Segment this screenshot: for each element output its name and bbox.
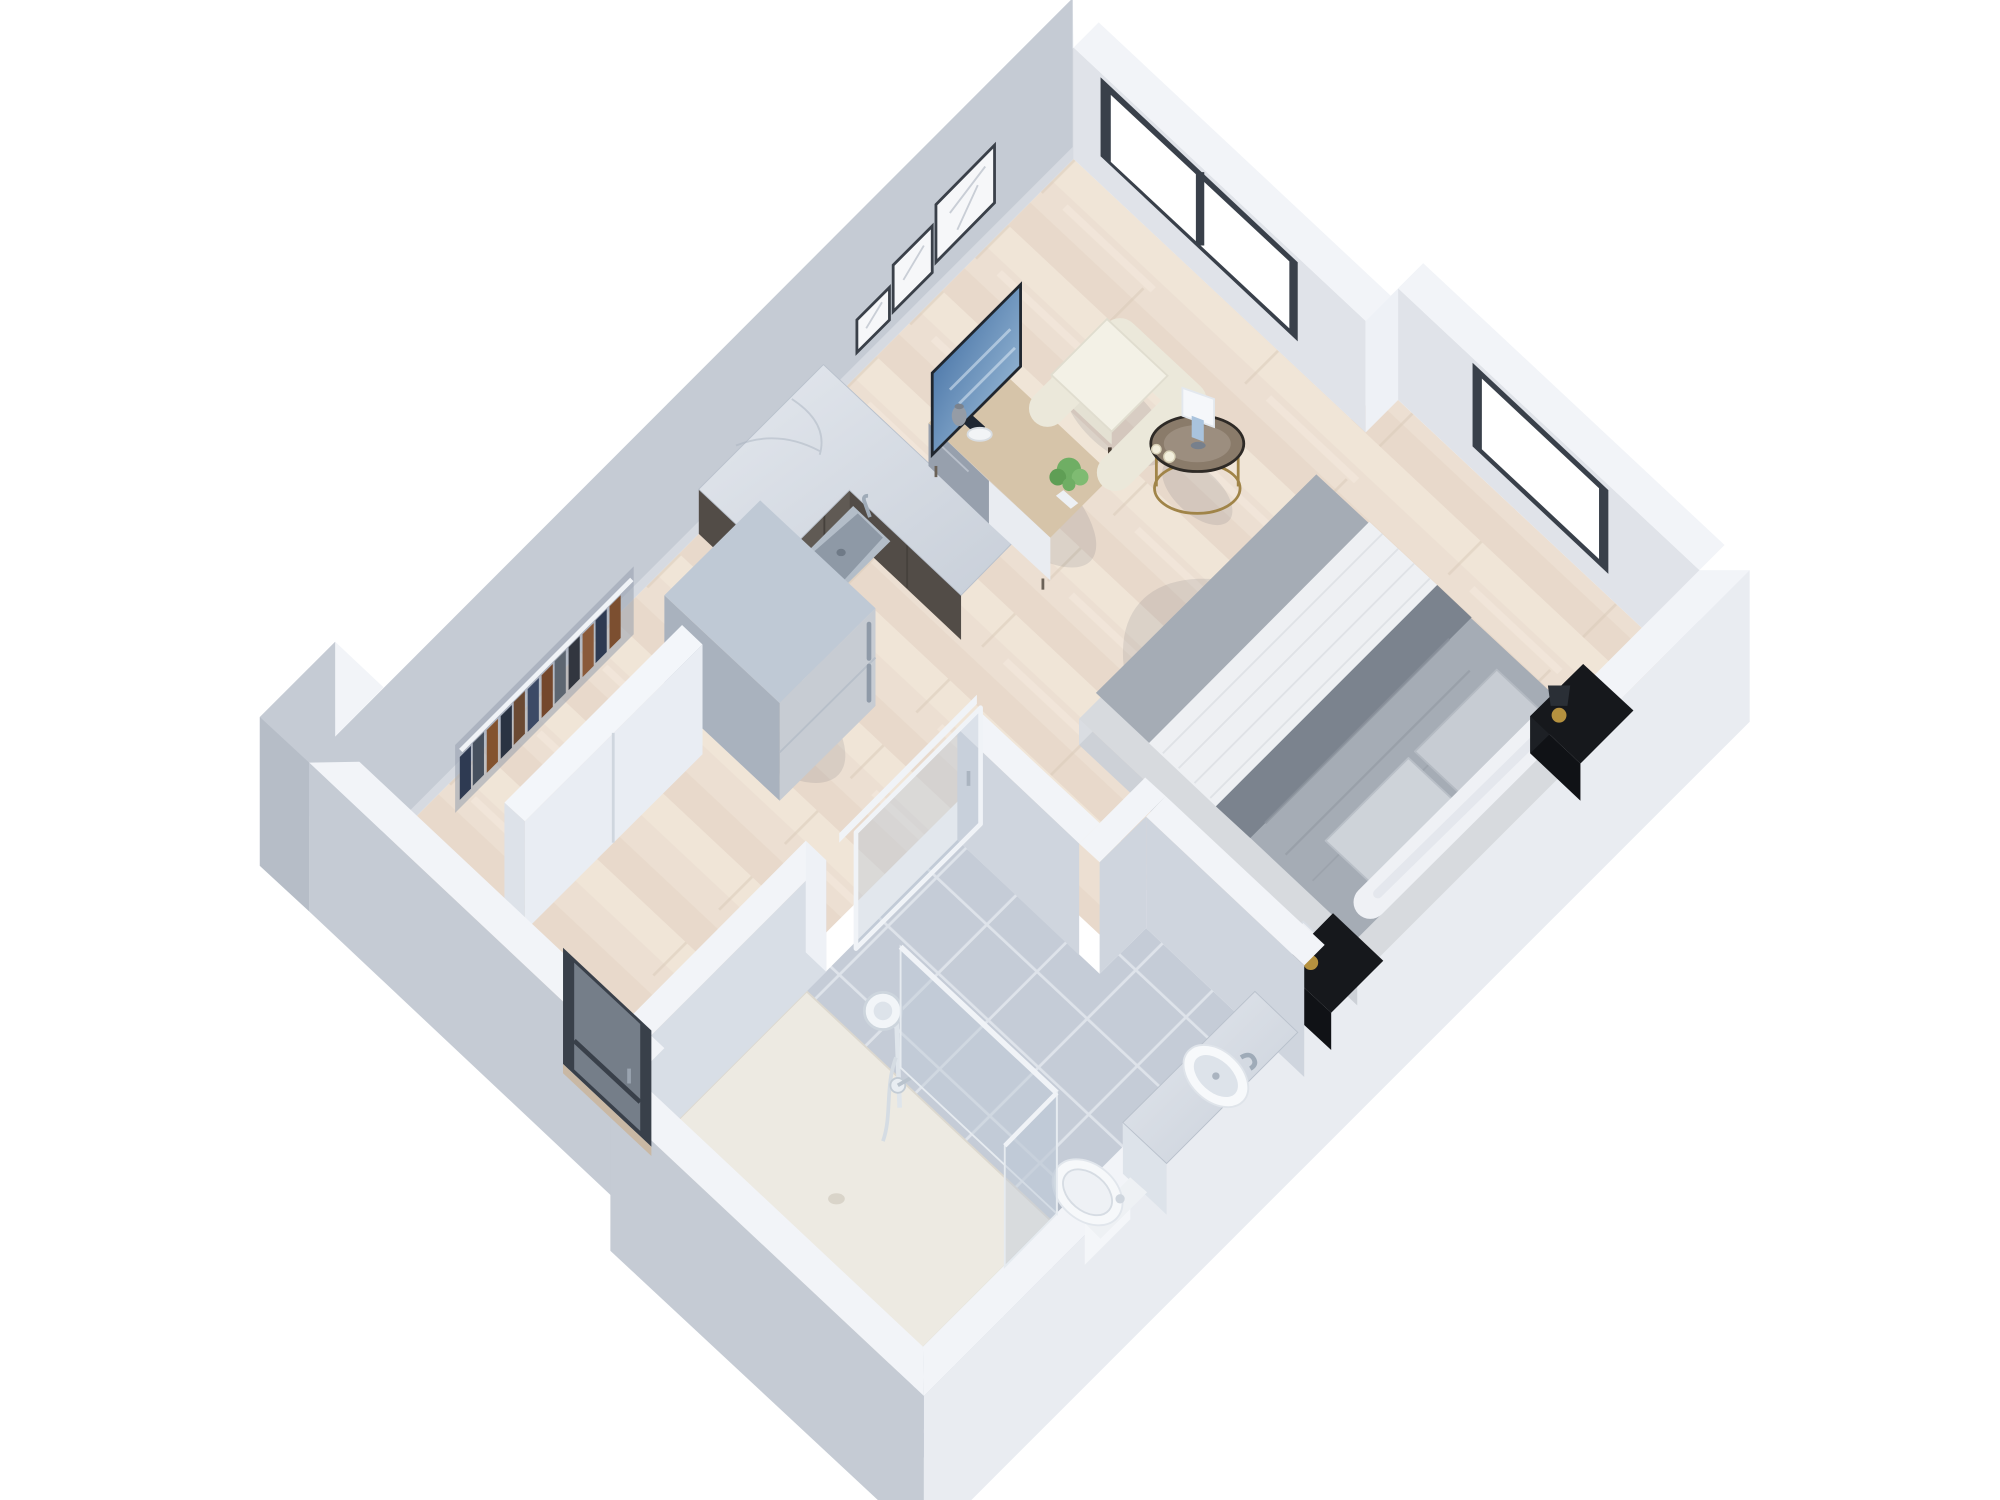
lamp-base [1191,442,1206,449]
sink-drain [836,549,845,556]
lamp-shade-dark [1548,685,1570,705]
basin-drain [1212,1072,1219,1079]
candle [1152,445,1161,454]
vase-mouth [955,404,964,410]
bowl [968,428,992,441]
flush-button [1115,1194,1124,1203]
shower-head-center [874,1002,893,1021]
candle [1164,451,1175,462]
doorway-end-cap [806,841,826,972]
apartment-scene [0,0,2000,1500]
shower-drain [828,1193,845,1204]
scene-root [260,0,1750,1500]
plant-leaves [1062,478,1075,491]
gold-lamp-base [1552,708,1567,723]
floorplan-render [0,0,2000,1500]
